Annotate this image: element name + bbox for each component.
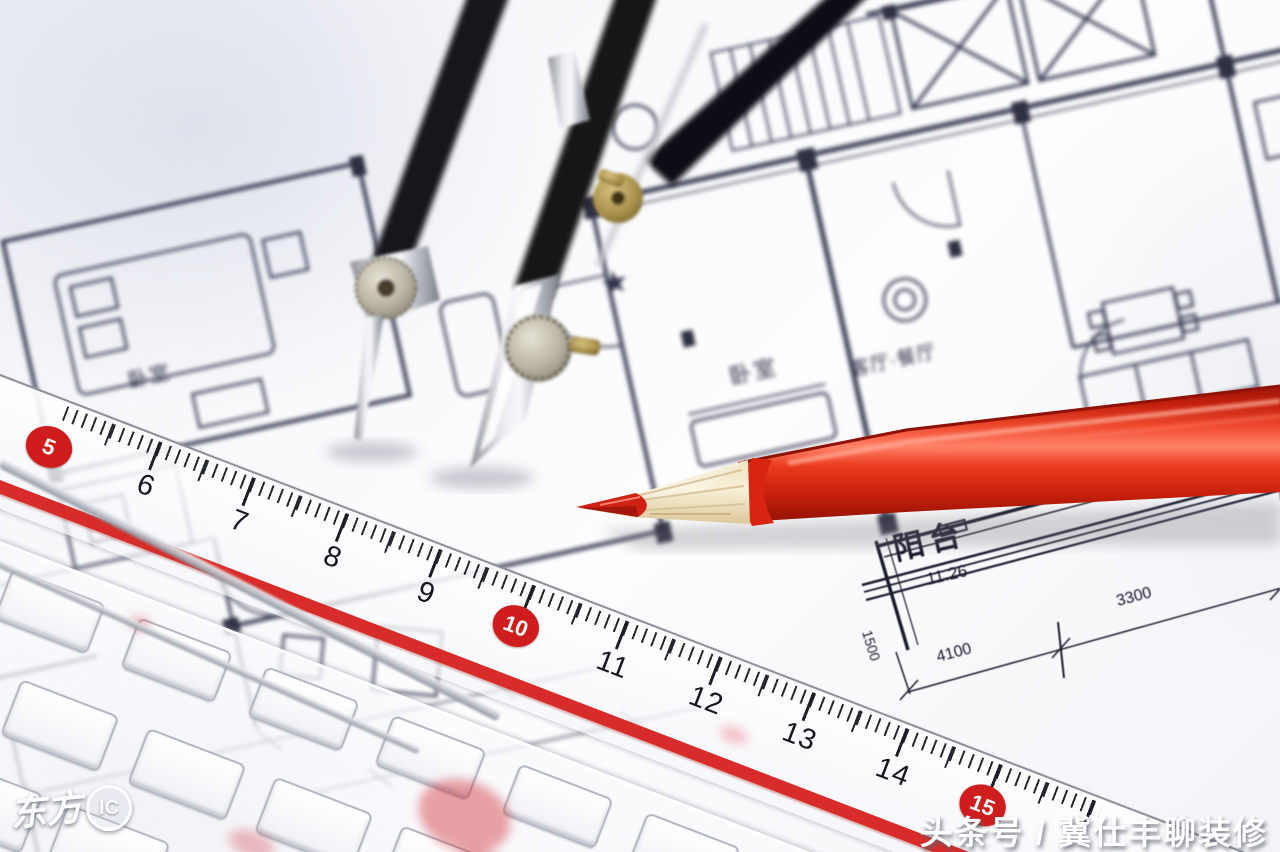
pencil-body [738,386,1280,522]
agency-watermark: 东方 IC [10,782,132,834]
credit-watermark: 头条号 / 冀仕丰聊装修 [919,806,1268,852]
compass-shadows [326,442,534,489]
agency-badge-text: IC [99,797,119,820]
photo-canvas: 卧室 客厅·餐厅 卧室 B.P ★ [0,0,1280,852]
compass-arms [362,0,876,298]
brass-screw [569,336,601,356]
agency-brand: 东方 [7,778,84,837]
drafting-compasses [0,0,1280,852]
agency-badge-icon: IC [86,785,132,831]
red-pencil [576,386,1280,550]
needle-point [354,314,384,442]
gear-wheel [504,314,572,382]
